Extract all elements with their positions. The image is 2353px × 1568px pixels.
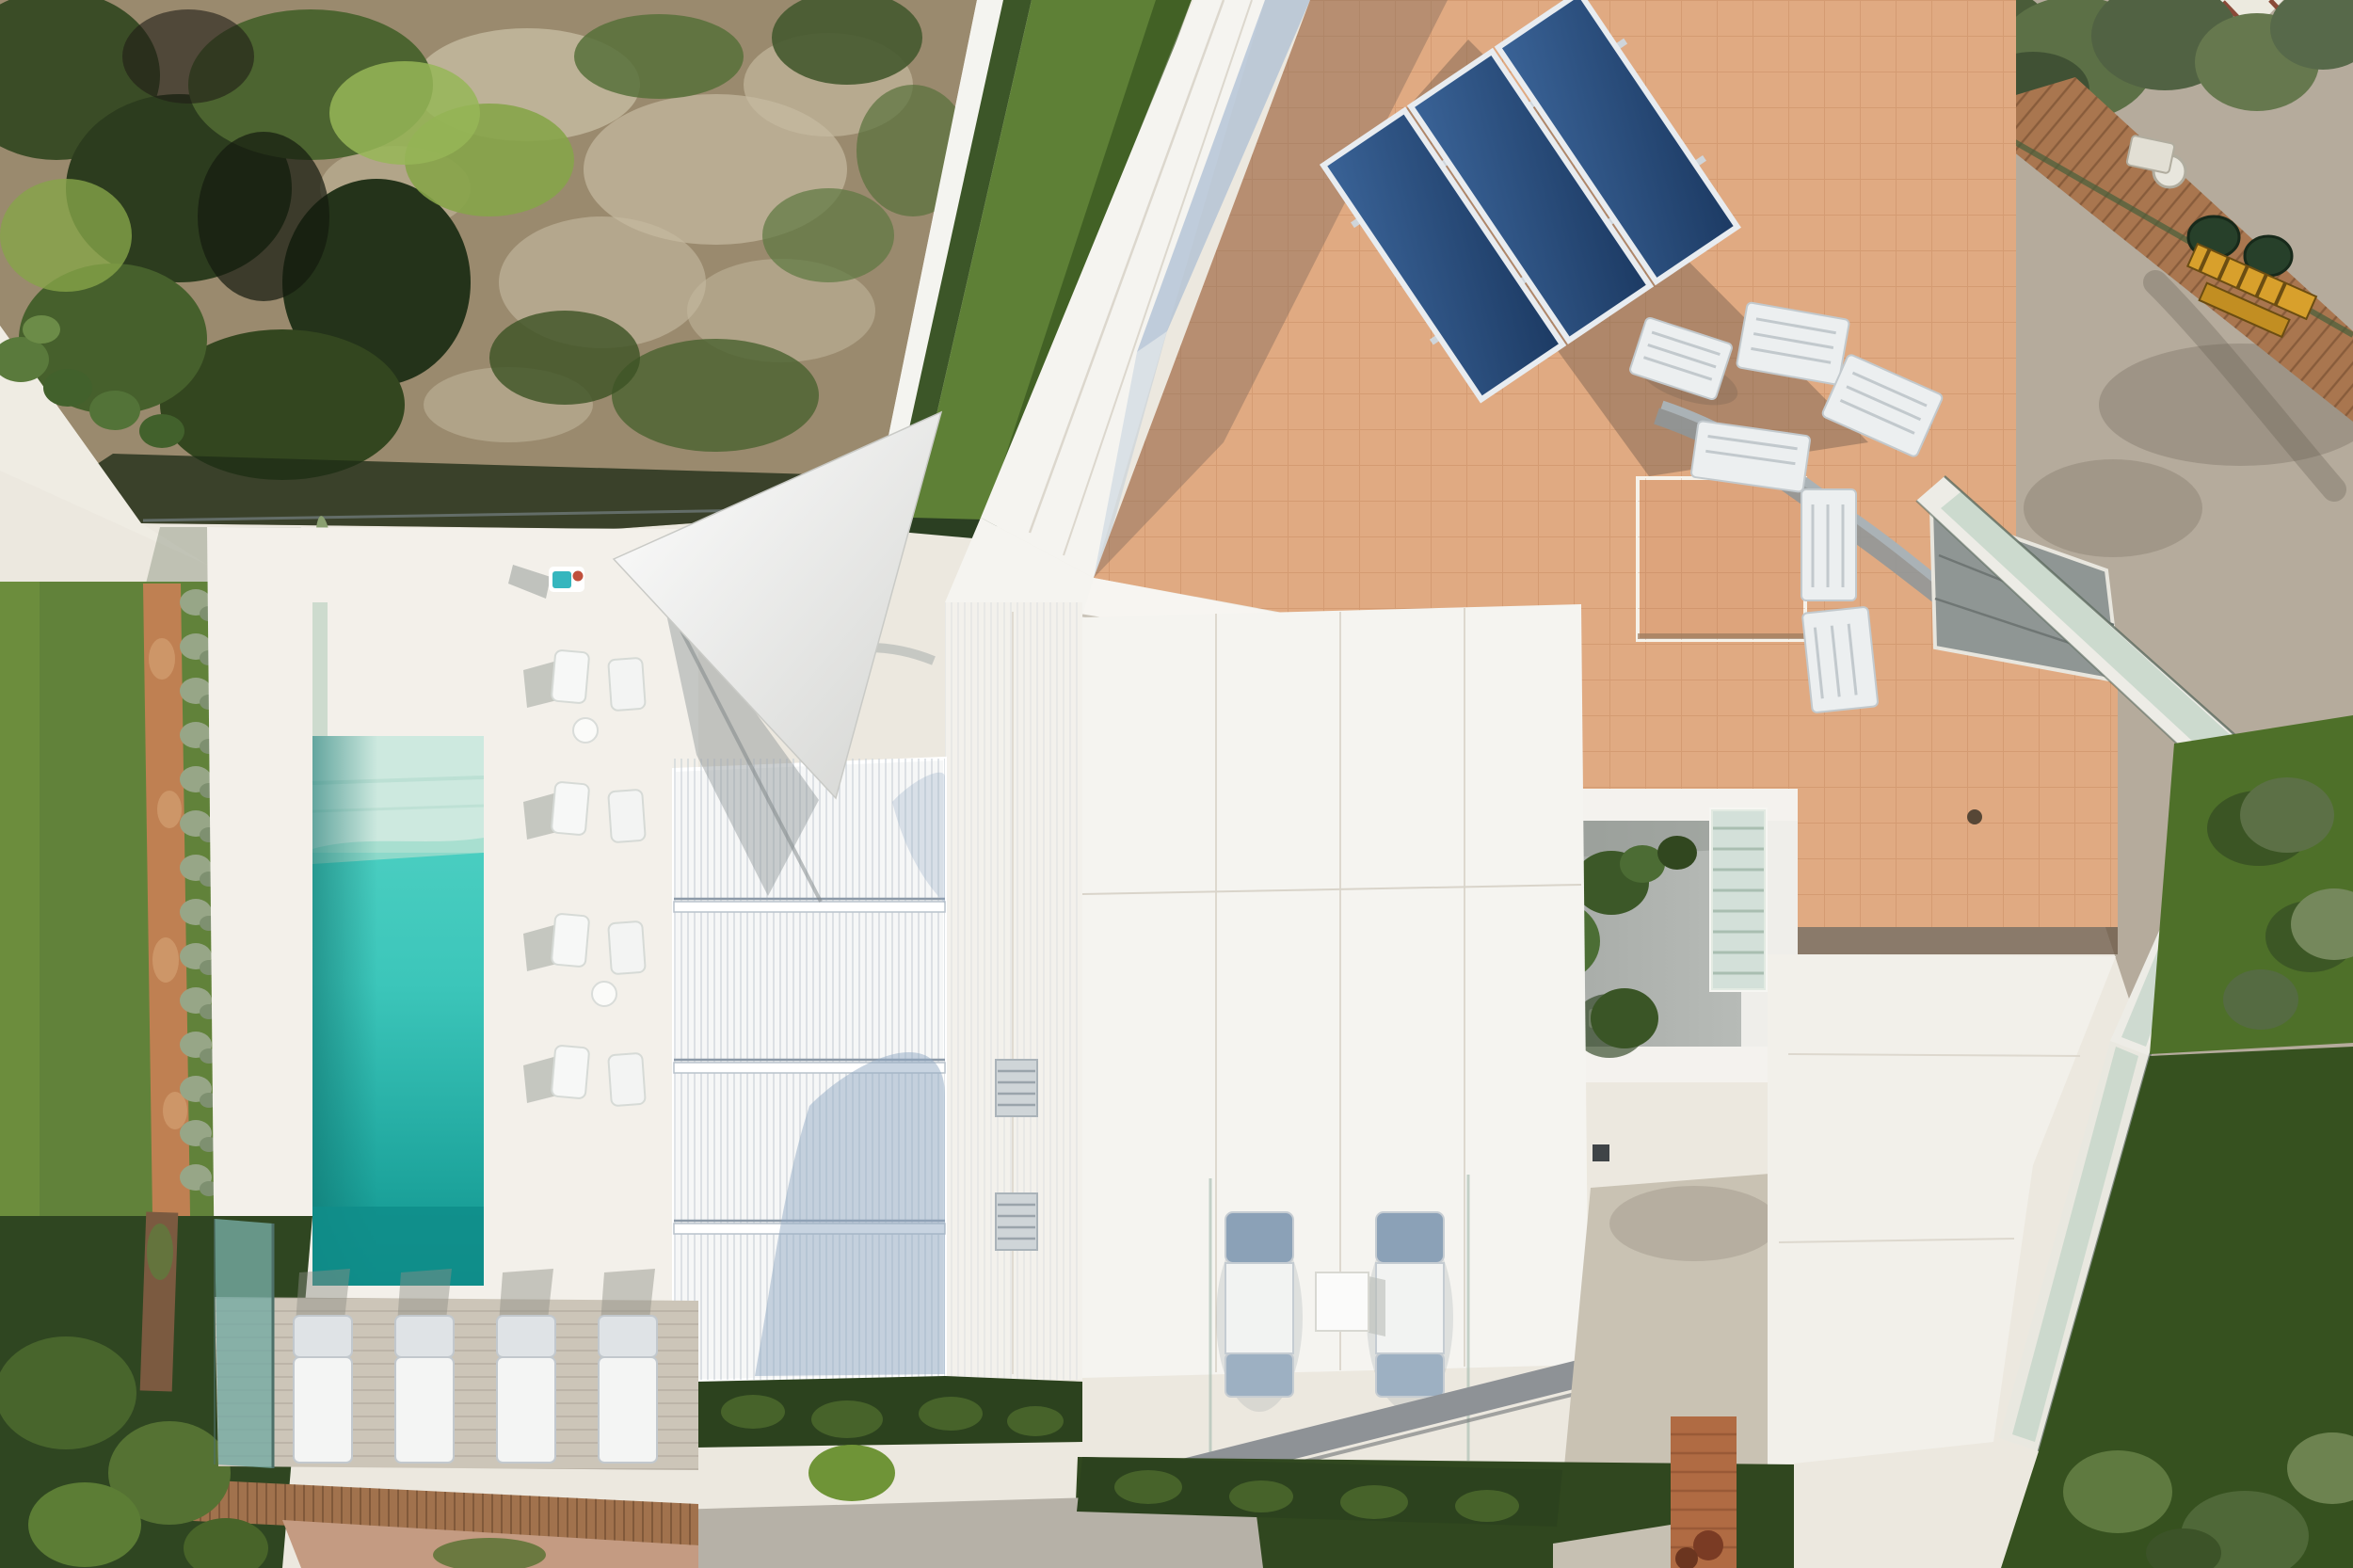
terrace-lounger (1216, 1212, 1303, 1412)
corner-glass-balustrade (215, 1219, 273, 1468)
louvre-wall-column (945, 602, 1082, 1380)
lounger-headrest (1376, 1212, 1444, 1263)
roof-edge-shadow-band (1794, 927, 2118, 954)
lounger-head (395, 1316, 454, 1357)
side-table (573, 718, 598, 743)
rust-object (1693, 1530, 1723, 1560)
lounger-head (599, 1316, 657, 1357)
lounger-cushion (1376, 1263, 1444, 1353)
tree-shadow (2024, 459, 2202, 557)
pool-area (207, 527, 698, 1304)
pool-lounger (497, 1269, 555, 1463)
apron-shadow (1609, 1186, 1779, 1261)
aerial-photo-canvas (0, 0, 2353, 1568)
courtyard-louvre-skylight (1711, 809, 1766, 990)
chimney-block (1638, 478, 1805, 640)
lounger-foot (1225, 1353, 1293, 1397)
lounger-body (599, 1357, 657, 1463)
person-head (573, 571, 584, 582)
lounger-head (294, 1316, 352, 1357)
ac-unit (1802, 607, 1879, 713)
brick-path (1671, 1416, 1737, 1568)
olive-tree (2240, 777, 2334, 853)
pool-lounger (599, 1269, 657, 1463)
lounger-body (294, 1357, 352, 1463)
teal-towel (552, 571, 571, 588)
pool-lounger (395, 1269, 454, 1463)
courtyard-bush (1657, 836, 1697, 870)
right-grass-patch (2150, 715, 2353, 1054)
lounger-body (497, 1357, 555, 1463)
lounger-cushion (1225, 1263, 1293, 1353)
lounger-body (395, 1357, 454, 1463)
side-table (592, 982, 616, 1006)
roof-drain (1967, 809, 1982, 824)
aerial-photo (0, 0, 2353, 1568)
swimming-pool (312, 736, 484, 1286)
lounger-head (497, 1316, 555, 1357)
terrace-side-table (1316, 1272, 1385, 1336)
lounger-headrest (1225, 1212, 1293, 1263)
louvre-opening (996, 1193, 1037, 1250)
ac-unit (1801, 489, 1856, 600)
roof-vent-square (1593, 1144, 1609, 1161)
left-lawn-bright-edge (0, 582, 40, 1216)
trunk-vine (147, 1224, 173, 1280)
lower-white-roof (1082, 604, 1609, 1496)
lounger-foot (1376, 1353, 1444, 1397)
olive-tree (2223, 969, 2298, 1030)
louvre-opening (996, 1060, 1037, 1116)
pool-lounger (294, 1269, 352, 1463)
bright-bush (808, 1445, 895, 1501)
courtyard-tree (1591, 988, 1658, 1048)
pergola (674, 759, 945, 1382)
